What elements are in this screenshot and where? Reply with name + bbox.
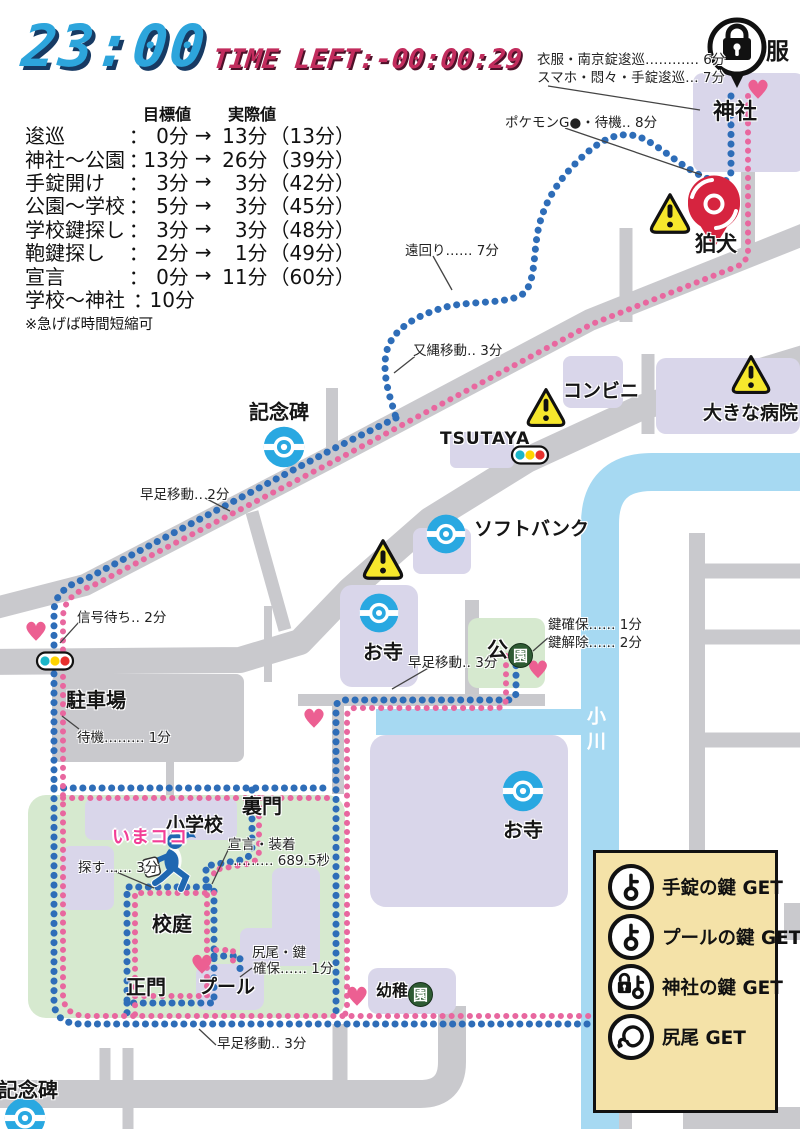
legend-label: プールの鍵 GET (662, 924, 800, 950)
legend-item-handcuff-key: 手錠の鍵 GET (608, 864, 783, 910)
callout-declare-equip-time: ……… 689.5秒 (233, 849, 330, 869)
label-komainu: 狛犬 (695, 228, 737, 258)
schedule-note: ※急げば時間短縮可 (25, 313, 355, 334)
label-park: 公園 (487, 634, 533, 668)
schedule-header: 目標値 実際値 (25, 101, 355, 123)
shrine-lock-key-icon (608, 964, 654, 1010)
clock-display: 23:00 (18, 12, 210, 80)
callout-signal-wait: 信号待ち‥ 2分 (77, 606, 166, 626)
label-parking: 駐車場 (66, 684, 126, 713)
label-park-circled: 園 (508, 643, 533, 668)
label-schoolyard: 校庭 (152, 908, 192, 937)
callout-standby: 待機……… 1分 (77, 726, 171, 746)
legend-box: 手錠の鍵 GET プールの鍵 GET 神社の鍵 GET 尻尾 GET (593, 850, 778, 1113)
row-arrow: → (189, 146, 218, 170)
callout-smartphone: スマホ・悶々・手錠逡巡… 7分 (537, 66, 725, 86)
callout-pokemon-go: ポケモンG●・待機‥ 8分 (505, 111, 657, 131)
pokestop-icon-temple1 (360, 594, 399, 633)
handcuff-key-icon (608, 864, 654, 910)
label-stream: 小川 (582, 706, 609, 756)
legend-item-tail: 尻尾 GET (608, 1014, 746, 1060)
label-main-gate: 正門 (126, 971, 166, 1000)
row-colon: ： (133, 284, 147, 313)
legend-item-shrine-key: 神社の鍵 GET (608, 964, 783, 1010)
traffic-light-tsutaya (512, 447, 548, 464)
label-park-prefix: 公 (487, 638, 508, 662)
legend-item-pool-key: プールの鍵 GET (608, 914, 800, 960)
label-shrine: 神社 (713, 94, 757, 126)
label-big-hospital: 大きな病院 (703, 398, 798, 425)
heart-kindergarten (347, 987, 366, 1006)
row-arrow: → (189, 123, 218, 147)
callout-detour: 遠回り…… 7分 (405, 239, 499, 259)
legend-label: 尻尾 GET (662, 1024, 746, 1050)
time-left-display: TIME LEFT:-00:00:29 (211, 44, 523, 75)
callout-key-unlock: 鍵解除…… 2分 (548, 631, 642, 651)
label-here-marker: いまココ (112, 823, 188, 849)
heart-mid (304, 709, 323, 728)
label-back-gate: 裏門 (242, 790, 282, 819)
walkthrough-map-page: 23:00 TIME LEFT:-00:00:29 目標値 実際値 逡巡：0分→… (0, 0, 800, 1129)
legend-label: 神社の鍵 GET (662, 974, 783, 1000)
callout-fast-walk-3-bottom: 早足移動‥ 3分 (217, 1032, 306, 1052)
warning-icon-conbini (528, 390, 564, 426)
row-total: （60分） (270, 261, 355, 290)
label-softbank: ソフトバンク (474, 514, 589, 541)
label-temple2: お寺 (503, 814, 543, 843)
label-monument: 記念碑 (249, 396, 309, 425)
row-arrow: → (189, 240, 218, 264)
row-target: 10分 (147, 284, 195, 313)
label-kindergarten-circled: 園 (408, 982, 433, 1007)
tail-icon (608, 1014, 654, 1060)
label-convenience-store: コンビニ (563, 376, 639, 403)
pokestop-icon-temple2 (503, 771, 543, 811)
warning-icon-komainu (651, 195, 688, 232)
callout-rope-move: 又縄移動‥ 3分 (413, 339, 502, 359)
label-temple1: お寺 (363, 636, 403, 665)
callout-key-secure: 鍵確保…… 1分 (548, 613, 642, 633)
label-monument2: 記念碑 (0, 1074, 58, 1103)
traffic-light-parking (37, 653, 73, 670)
pokestop-icon-softbank (427, 515, 466, 554)
row-name: 学校～神社 (25, 284, 133, 313)
callout-search: 探す…… 3分 (78, 856, 158, 876)
label-kindergarten-prefix: 幼稚 (376, 981, 408, 1000)
row-arrow: → (189, 169, 218, 193)
pokestop-icon-monument (264, 427, 304, 467)
callout-clothes-lock: 衣服・南京錠逡巡………… 6分 (537, 48, 725, 68)
row-arrow: → (189, 216, 218, 240)
col-actual: 実際値 (228, 101, 276, 125)
label-pool: プール (198, 972, 255, 999)
schedule-table: 目標値 実際値 逡巡：0分→13分（13分） 神社～公園：13分→26分（39分… (25, 101, 355, 334)
col-target: 目標値 (143, 101, 191, 125)
legend-label: 手錠の鍵 GET (662, 874, 783, 900)
callout-fast-walk-3-park: 早足移動‥ 3分 (408, 651, 497, 671)
callout-tail-key-secure: 確保…… 1分 (253, 957, 333, 977)
schedule-row: 学校～神社：10分 (25, 287, 355, 310)
row-arrow: → (189, 193, 218, 217)
pool-key-icon (608, 914, 654, 960)
row-actual: 11分 (218, 261, 268, 290)
label-clothes: 服 (766, 32, 789, 66)
callout-fast-walk-2: 早足移動‥ 2分 (140, 483, 229, 503)
label-kindergarten: 幼稚園 (376, 977, 433, 1007)
label-tsutaya: TSUTAYA (440, 429, 530, 449)
heart-signal (26, 622, 45, 641)
